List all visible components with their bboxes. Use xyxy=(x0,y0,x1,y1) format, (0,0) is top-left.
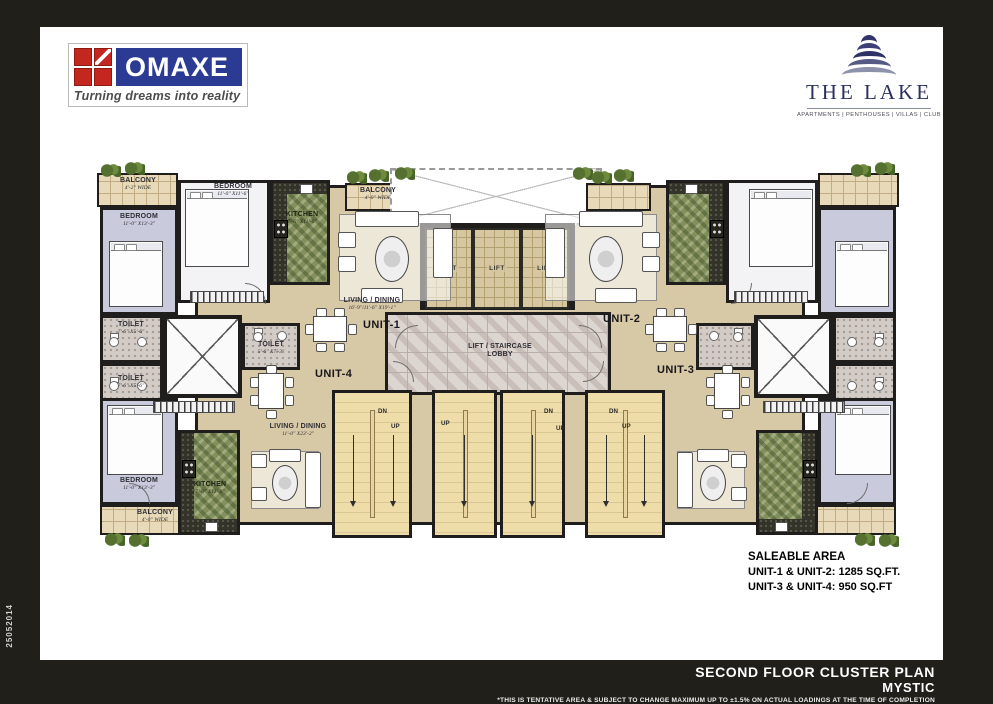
room-dim: 4'-0" WIDE xyxy=(115,517,195,524)
pillow-icon xyxy=(852,408,863,415)
stair-up-label: UP xyxy=(441,420,450,427)
toilet-right-1 xyxy=(833,315,896,363)
toilet-center-right xyxy=(696,323,754,370)
pillow-icon xyxy=(754,192,765,199)
omaxe-tagline: Turning dreams into reality xyxy=(74,89,242,103)
omaxe-logo: OMAXE Turning dreams into reality xyxy=(68,43,248,107)
room-dim: 11'-0" X13'-3" xyxy=(103,485,175,492)
sheet-page: OMAXE Turning dreams into reality THE LA… xyxy=(40,27,943,660)
floor-plan: LIFT LIFT LIFT LIFT / STAIRCASE LOBBY DN… xyxy=(95,165,901,545)
room-dim: 11'-0" X11'-6" xyxy=(198,191,268,198)
plant-icon xyxy=(875,162,895,175)
omaxe-square xyxy=(74,48,92,66)
dining-table-unit4 xyxy=(250,365,292,417)
room-dim: 4'-0" WIDE xyxy=(347,195,409,202)
sink-icon xyxy=(205,522,218,532)
omaxe-wordmark: OMAXE xyxy=(116,48,242,86)
coffee-table xyxy=(700,465,726,501)
omaxe-squares-icon xyxy=(74,48,112,86)
plant-icon xyxy=(614,169,634,182)
sofa-icon xyxy=(579,211,643,227)
lobby-label-2: LOBBY xyxy=(435,351,565,359)
lobby-label: LIFT / STAIRCASE xyxy=(435,343,565,351)
table xyxy=(313,316,347,342)
room-name: TOILET xyxy=(245,341,297,349)
saleable-heading: SALEABLE AREA xyxy=(748,550,900,565)
table xyxy=(653,316,687,342)
room-name: TOILET xyxy=(103,375,159,383)
sofa-icon xyxy=(269,449,301,462)
room-label-balcony-tl: BALCONY 4'-2" WIDE xyxy=(103,177,173,192)
chair-icon xyxy=(316,343,327,352)
wardrobe xyxy=(734,291,808,303)
title-block: SECOND FLOOR CLUSTER PLAN MYSTIC *THIS I… xyxy=(0,660,993,702)
omaxe-square xyxy=(94,68,112,86)
chair-icon xyxy=(722,365,733,374)
room-name: LIVING / DINING xyxy=(260,423,336,431)
omaxe-square xyxy=(74,68,92,86)
room-name: BEDROOM xyxy=(198,183,268,191)
coffee-table xyxy=(272,465,298,501)
stove-icon xyxy=(710,220,724,238)
stair-up-label: UP xyxy=(622,423,631,430)
sofa-icon xyxy=(433,228,453,278)
basin-icon xyxy=(709,331,719,341)
stair-arrow xyxy=(353,435,354,505)
plant-icon xyxy=(395,167,415,180)
staircase-4 xyxy=(585,390,665,538)
kitchen-counter xyxy=(802,433,815,532)
chair-icon xyxy=(642,256,660,272)
pillow-icon xyxy=(840,244,851,251)
sink-icon xyxy=(685,184,698,194)
unit4-label: UNIT-4 xyxy=(315,368,352,380)
sofa-icon xyxy=(355,211,419,227)
omaxe-logo-row: OMAXE xyxy=(74,48,242,86)
room-label-toilet-a: TOILET 7'-6" X5'-6" xyxy=(103,321,159,336)
lift-label: LIFT xyxy=(487,265,507,272)
bed xyxy=(185,189,249,267)
stair-rail xyxy=(370,410,375,518)
room-name: BALCONY xyxy=(115,509,195,517)
stair-arrow xyxy=(532,435,533,505)
sofa-icon xyxy=(305,452,321,508)
dining-table-unit1 xyxy=(305,308,355,350)
room-name: TOILET xyxy=(103,321,159,329)
wc-icon xyxy=(874,333,883,346)
room-name: KITCHEN xyxy=(183,481,237,489)
chair-icon xyxy=(741,395,750,406)
disclaimer: *THIS IS TENTATIVE AREA & SUBJECT TO CHA… xyxy=(0,697,935,704)
lake-wordmark: THE LAKE xyxy=(793,80,945,105)
basin-icon xyxy=(277,331,287,341)
chair-icon xyxy=(285,377,294,388)
stair-arrow xyxy=(644,435,645,505)
wardrobe xyxy=(190,291,264,303)
stair-up-label: UP xyxy=(391,423,400,430)
wc-icon xyxy=(874,377,883,390)
chair-icon xyxy=(722,410,733,419)
chair-icon xyxy=(334,343,345,352)
staircase-1 xyxy=(332,390,412,538)
stair-dn-label: DN xyxy=(609,408,618,415)
chair-icon xyxy=(656,308,667,317)
chair-icon xyxy=(251,454,267,468)
wc-icon xyxy=(733,328,742,341)
chair-icon xyxy=(251,487,267,501)
lake-arc-icon xyxy=(848,59,891,67)
room-name: KITCHEN xyxy=(275,211,329,219)
wc-icon xyxy=(253,328,262,341)
basin-icon xyxy=(137,337,147,347)
shaft-right xyxy=(754,315,833,398)
room-dim: 11'-0" X23'-2" xyxy=(260,431,336,438)
plant-icon xyxy=(347,171,367,184)
bed xyxy=(835,405,891,475)
room-dim: 7'-6" X5'-6" xyxy=(103,383,159,390)
room-label-kitchen-top: KITCHEN 7'-6" X11'-6" xyxy=(275,211,329,226)
unit1-label: UNIT-1 xyxy=(363,319,400,331)
chair-icon xyxy=(731,487,747,501)
room-name: BEDROOM xyxy=(103,213,175,221)
lake-arc-icon xyxy=(857,43,881,51)
plant-icon xyxy=(879,534,899,547)
room-label-toilet-c: TOILET 5'-6" X7'-3" xyxy=(245,341,297,356)
chair-icon xyxy=(338,256,356,272)
basin-icon xyxy=(847,337,857,347)
chair-icon xyxy=(741,377,750,388)
lake-arc-icon xyxy=(853,51,886,59)
lake-divider xyxy=(807,108,931,109)
room-label-living-u1: LIVING / DINING 16'-9"/11'-6" X19'-1" xyxy=(326,297,418,312)
shaft-left xyxy=(163,315,242,398)
coffee-table xyxy=(375,236,409,282)
sofa-set-unit4 xyxy=(247,447,323,513)
sofa-icon xyxy=(595,288,637,303)
chair-icon xyxy=(674,308,685,317)
bed xyxy=(835,241,889,307)
chair-icon xyxy=(266,410,277,419)
plan-title: SECOND FLOOR CLUSTER PLAN xyxy=(0,664,935,680)
pillow-icon xyxy=(852,244,863,251)
omaxe-square-slash xyxy=(94,48,112,66)
sofa-set-unit2 xyxy=(541,210,661,305)
room-dim: 16'-9"/11'-6" X19'-1" xyxy=(326,305,418,312)
room-dim: 7'-0" X11'-6" xyxy=(183,489,237,496)
balcony-unit2 xyxy=(586,183,651,211)
pillow-icon xyxy=(112,408,123,415)
table xyxy=(258,373,284,409)
stair-dn-label: DN xyxy=(544,408,553,415)
sink-icon xyxy=(775,522,788,532)
chair-icon xyxy=(642,232,660,248)
stair-arrow xyxy=(393,435,394,505)
room-name: LIVING / DINING xyxy=(326,297,418,305)
bed xyxy=(107,405,163,475)
bed xyxy=(749,189,813,267)
basin-icon xyxy=(847,381,857,391)
unit3-label: UNIT-3 xyxy=(657,364,694,376)
sink-icon xyxy=(300,184,313,194)
chair-icon xyxy=(250,395,259,406)
stove-icon xyxy=(803,460,817,478)
stair-arrow xyxy=(464,435,465,505)
chair-icon xyxy=(338,232,356,248)
room-label-toilet-b: TOILET 7'-6" X5'-6" xyxy=(103,375,159,390)
plant-icon xyxy=(592,171,612,184)
room-dim: 7'-6" X5'-6" xyxy=(103,329,159,336)
sofa-icon xyxy=(677,452,693,508)
room-name: BALCONY xyxy=(347,187,409,195)
plant-icon xyxy=(369,169,389,182)
wardrobe xyxy=(763,401,845,413)
room-dim: 7'-6" X11'-6" xyxy=(275,219,329,226)
dining-table-unit2 xyxy=(645,308,695,350)
chair-icon xyxy=(706,377,715,388)
lake-arc-icon xyxy=(842,67,896,75)
room-dim: 11'-0" X13'-3" xyxy=(103,221,175,228)
chair-icon xyxy=(305,324,314,335)
lake-arc-icon xyxy=(861,35,877,43)
room-dim: 5'-6" X7'-3" xyxy=(245,349,297,356)
sofa-icon xyxy=(545,228,565,278)
chair-icon xyxy=(731,454,747,468)
plant-icon xyxy=(855,533,875,546)
room-label-bedroom-left-top: BEDROOM 11'-0" X13'-3" xyxy=(103,213,175,228)
saleable-units12: UNIT-1 & UNIT-2: 1285 SQ.FT. xyxy=(748,565,900,580)
bed xyxy=(109,241,163,307)
stair-dn-label: DN xyxy=(378,408,387,415)
saleable-units34: UNIT-3 & UNIT-4: 950 SQ.FT xyxy=(748,580,900,595)
plant-icon xyxy=(101,164,121,177)
sofa-set-unit3 xyxy=(673,447,749,513)
room-name: BALCONY xyxy=(103,177,173,185)
chair-icon xyxy=(285,395,294,406)
chair-icon xyxy=(674,343,685,352)
saleable-area-note: SALEABLE AREA UNIT-1 & UNIT-2: 1285 SQ.F… xyxy=(748,550,900,594)
room-label-bedroom-left-bottom: BEDROOM 11'-0" X13'-3" xyxy=(103,477,175,492)
chair-icon xyxy=(250,377,259,388)
sofa-set-unit1 xyxy=(335,210,455,305)
plant-icon xyxy=(125,162,145,175)
chair-icon xyxy=(656,343,667,352)
wardrobe xyxy=(153,401,235,413)
stair-arrow xyxy=(606,435,607,505)
table xyxy=(714,373,740,409)
stair-up-label: UP xyxy=(556,425,565,432)
plant-icon xyxy=(105,533,125,546)
pillow-icon xyxy=(126,244,137,251)
plant-icon xyxy=(851,164,871,177)
room-label-living-u4: LIVING / DINING 11'-0" X23'-2" xyxy=(260,423,336,438)
chair-icon xyxy=(266,365,277,374)
pillow-icon xyxy=(124,408,135,415)
pillow-icon xyxy=(114,244,125,251)
plant-icon xyxy=(573,167,593,180)
pillow-icon xyxy=(766,192,777,199)
unit2-label: UNIT-2 xyxy=(603,313,640,325)
drawing-code: 25052014 xyxy=(5,604,14,648)
lift-2: LIFT xyxy=(473,228,521,309)
dining-table-unit3 xyxy=(706,365,748,417)
balcony-top-right xyxy=(818,173,899,207)
room-label-bedroom-top: BEDROOM 11'-0" X11'-6" xyxy=(198,183,268,198)
chair-icon xyxy=(348,324,357,335)
the-lake-logo: THE LAKE APARTMENTS | PENTHOUSES | VILLA… xyxy=(793,35,945,118)
room-label-kitchen-bottom: KITCHEN 7'-0" X11'-6" xyxy=(183,481,237,496)
lake-subtitle: APARTMENTS | PENTHOUSES | VILLAS | CLUB xyxy=(793,112,945,118)
plant-icon xyxy=(129,534,149,547)
room-name: BEDROOM xyxy=(103,477,175,485)
room-label-balcony-bl: BALCONY 4'-0" WIDE xyxy=(115,509,195,524)
plan-subtitle: MYSTIC xyxy=(0,680,935,695)
chair-icon xyxy=(688,324,697,335)
chair-icon xyxy=(645,324,654,335)
sofa-icon xyxy=(697,449,729,462)
room-dim: 4'-2" WIDE xyxy=(103,185,173,192)
room-label-balcony-u1: BALCONY 4'-0" WIDE xyxy=(347,187,409,202)
chair-icon xyxy=(706,395,715,406)
stove-icon xyxy=(182,460,196,478)
coffee-table xyxy=(589,236,623,282)
